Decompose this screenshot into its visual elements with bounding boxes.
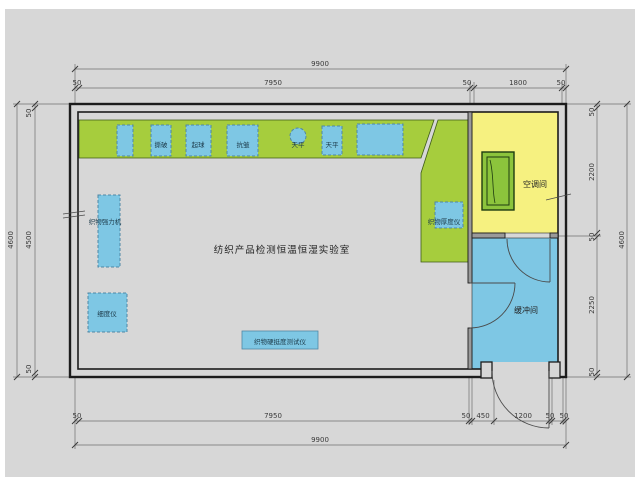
- bench-label-balance-round: 天平: [292, 141, 306, 149]
- dim-right-50mid: 50: [588, 233, 596, 242]
- dim-right-buffer: 2250: [588, 296, 596, 314]
- dim-bot-50a: 50: [73, 412, 82, 420]
- bench-box-unlabeled-1: [117, 125, 133, 156]
- dim-right-50top: 50: [588, 108, 596, 117]
- dim-top-50c: 50: [557, 79, 566, 87]
- ac-room-label: 空调间: [523, 179, 547, 189]
- bench-label-balance-box: 天平: [326, 141, 340, 149]
- bench-label-wrinkle: 抗皱: [237, 140, 251, 149]
- buffer-room-label: 缓冲间: [514, 305, 538, 315]
- dim-right-overall: 4600: [618, 231, 626, 249]
- dim-top-50a: 50: [73, 79, 82, 87]
- dim-left-50bot: 50: [25, 365, 33, 374]
- dim-right-50bot: 50: [588, 368, 596, 377]
- thickness-meter-label: 织物厚度仪: [428, 217, 461, 226]
- dim-bot-main: 7950: [264, 412, 282, 420]
- dim-bot-50c: 50: [546, 412, 555, 420]
- stiffness-tester-label: 织物硬挺度测试仪: [254, 337, 307, 346]
- floorplan-canvas: 9900 50 7950 50 1800 50 50 7950 50 450 1…: [0, 0, 640, 488]
- buffer-room-area: [472, 238, 558, 369]
- dim-top-ac: 1800: [509, 79, 527, 87]
- dim-left-main: 4500: [25, 231, 33, 249]
- dim-left-overall: 4600: [7, 231, 15, 249]
- dim-bot-50b: 50: [462, 412, 471, 420]
- floorplan-drawing: 9900 50 7950 50 1800 50 50 7950 50 450 1…: [0, 0, 640, 488]
- dim-left-50top: 50: [25, 109, 33, 118]
- dim-bot-450: 450: [476, 412, 489, 420]
- dim-top-50b: 50: [463, 79, 472, 87]
- ac-unit: [482, 152, 514, 210]
- lab-room-title: 纺织产品检测恒温恒湿实验室: [214, 244, 351, 256]
- dim-top-main: 7950: [264, 79, 282, 87]
- strength-machine-box: [98, 195, 120, 267]
- fineness-meter-label: 细度仪: [97, 309, 117, 318]
- strength-machine-label: 织物强力机: [89, 217, 122, 226]
- dim-bot-50d: 50: [560, 412, 569, 420]
- entry-door-opening: [481, 362, 560, 380]
- dim-bot-overall: 9900: [311, 436, 329, 444]
- bench-label-pilling: 起球: [192, 140, 206, 149]
- dim-bot-door: 1200: [514, 412, 532, 420]
- dim-right-ac: 2200: [588, 163, 596, 181]
- bench-label-tear: 撕破: [155, 140, 169, 149]
- bench-box-unlabeled-2: [357, 124, 403, 155]
- dim-top-overall: 9900: [311, 60, 329, 68]
